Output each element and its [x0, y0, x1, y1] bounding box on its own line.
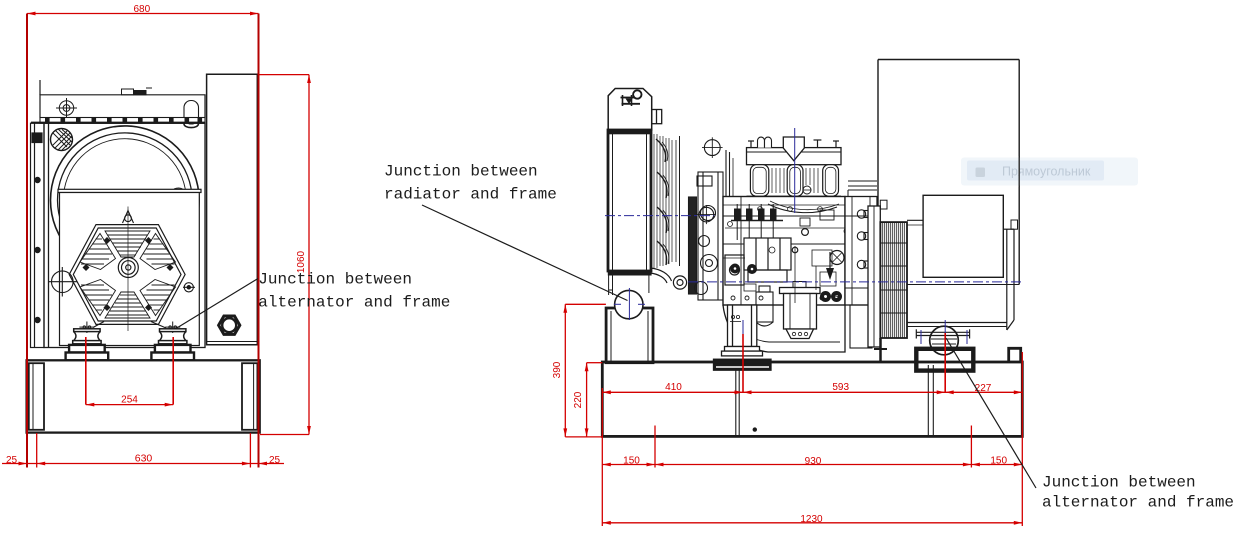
svg-text:25: 25 [6, 455, 18, 466]
svg-text:alternator and frame: alternator and frame [258, 294, 450, 312]
svg-text:220: 220 [573, 391, 584, 408]
svg-text:Junction between: Junction between [258, 271, 412, 289]
svg-text:227: 227 [975, 383, 992, 394]
svg-text:390: 390 [552, 361, 563, 378]
svg-text:410: 410 [665, 382, 682, 393]
svg-text:930: 930 [805, 456, 822, 467]
svg-text:Junction between: Junction between [384, 163, 538, 181]
svg-text:radiator and frame: radiator and frame [384, 186, 557, 204]
svg-text:1230: 1230 [800, 514, 823, 525]
svg-text:150: 150 [623, 455, 640, 466]
svg-text:254: 254 [121, 394, 138, 405]
svg-text:630: 630 [135, 452, 153, 464]
svg-text:25: 25 [269, 455, 281, 466]
svg-text:593: 593 [832, 382, 849, 393]
svg-text:Junction between: Junction between [1042, 474, 1196, 492]
svg-text:Прямоугольник: Прямоугольник [1002, 165, 1091, 179]
svg-text:680: 680 [133, 4, 150, 15]
svg-text:alternator and frame: alternator and frame [1042, 494, 1234, 512]
svg-text:150: 150 [990, 455, 1007, 466]
